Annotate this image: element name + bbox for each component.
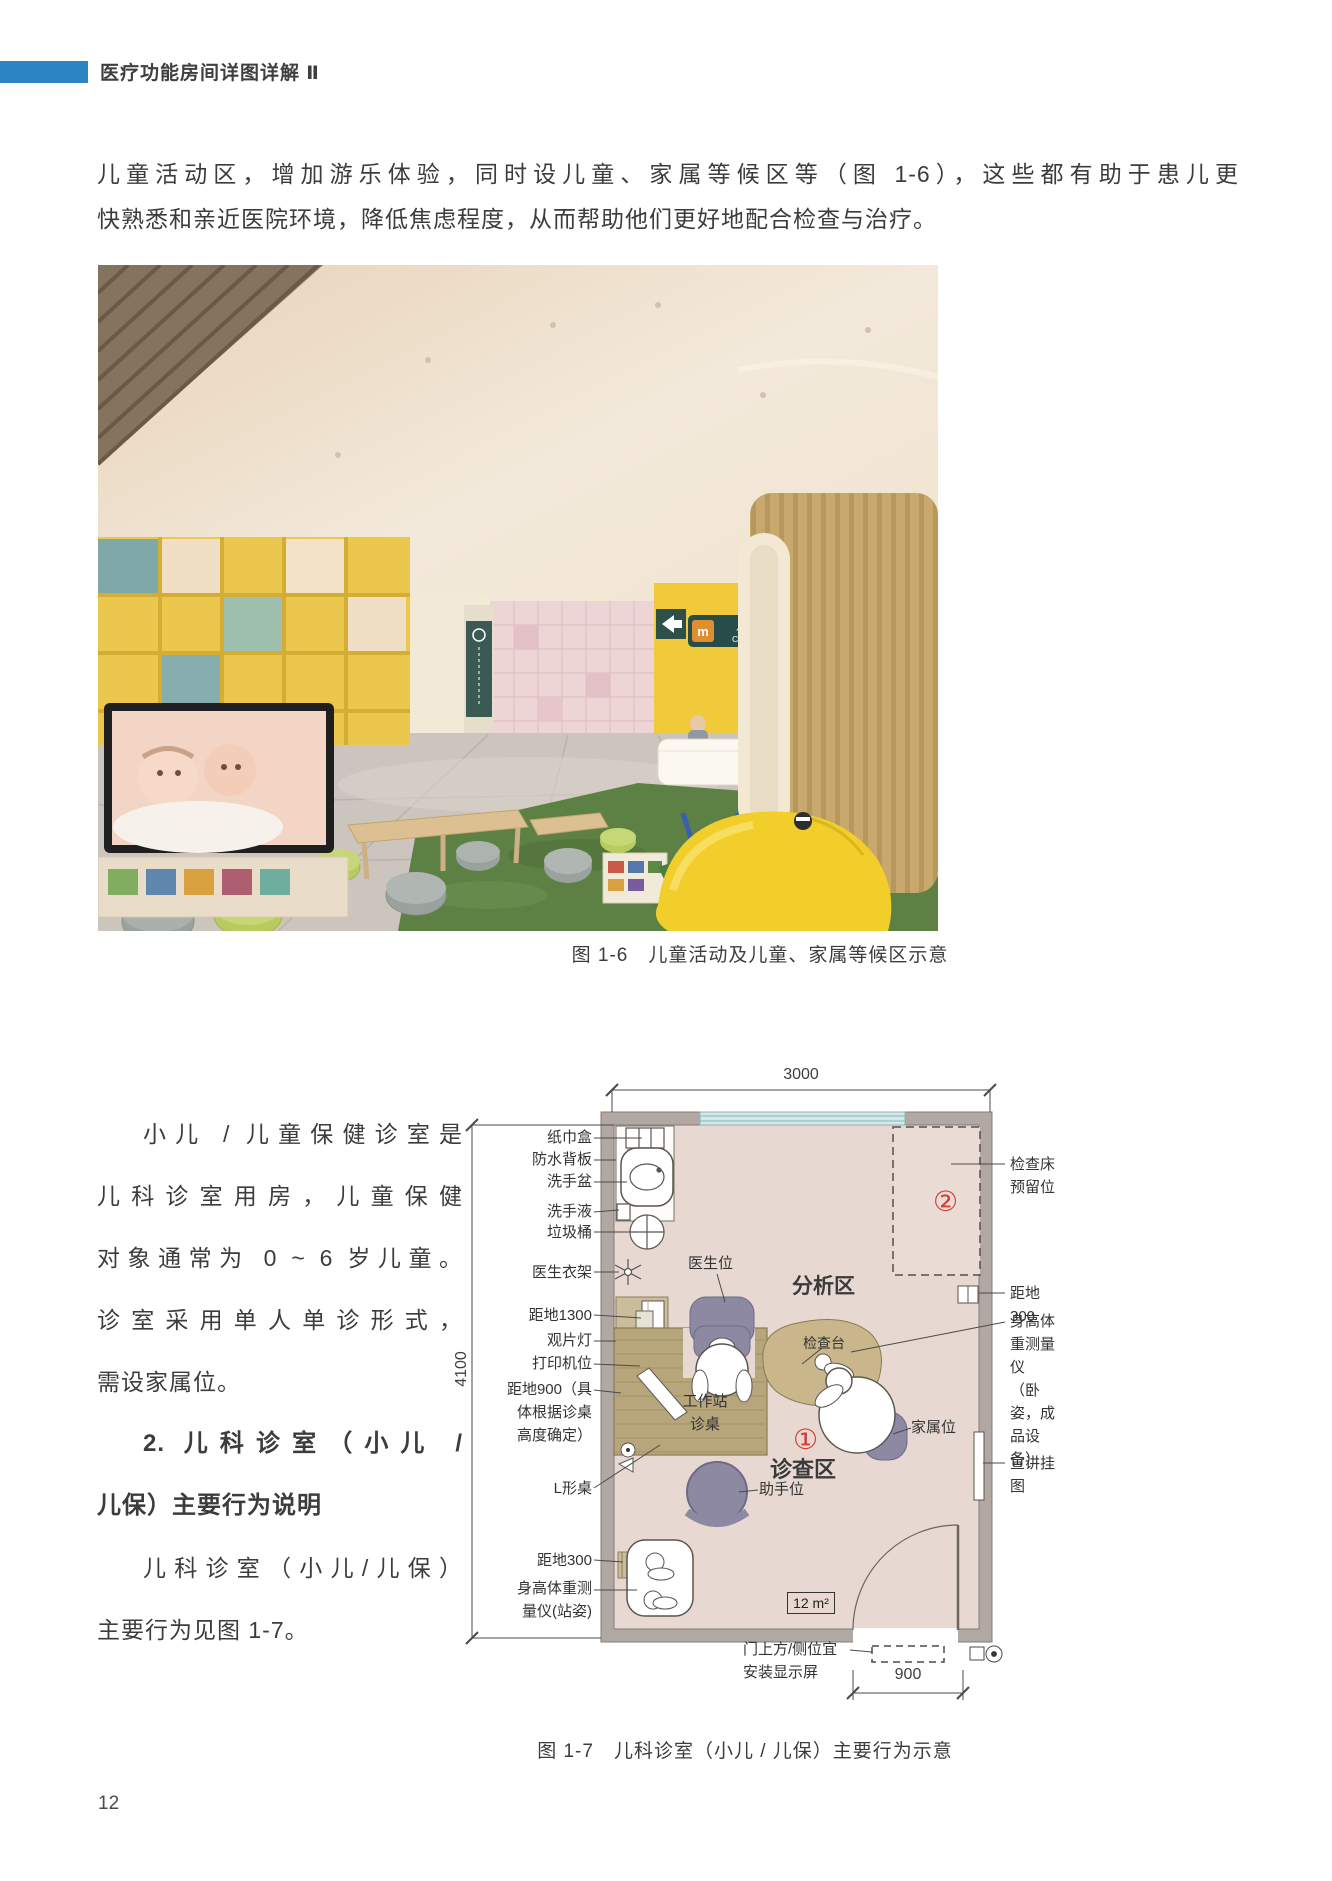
- assistant-seat-label: 助手位: [759, 1478, 804, 1501]
- marker-1: ①: [793, 1426, 818, 1454]
- height-900-note-label: 距地900（具 体根据诊桌 高度确定）: [507, 1378, 592, 1447]
- toy-shelf: [603, 853, 667, 903]
- stature-scale-station: [618, 1540, 693, 1616]
- children-activity-photo: m 儿童保健中心 Child Care Centre: [98, 265, 938, 931]
- sink-unit: [616, 1126, 674, 1221]
- film-viewer-label: 观片灯: [547, 1329, 592, 1352]
- waterproof-panel-label: 防水背板: [532, 1148, 592, 1171]
- exam-table-label: 检查台: [803, 1332, 845, 1355]
- stature-scale-standing-label: 身高体重测 量仪(站姿): [517, 1577, 592, 1623]
- analysis-zone-label: 分析区: [792, 1270, 855, 1300]
- floor-plan: 3000 4100 900 纸巾盒 防水背板 洗手盆 洗手液 垃圾桶 医生衣架 …: [395, 1060, 1055, 1720]
- marker-2: ②: [933, 1188, 958, 1216]
- printer-label: 打印机位: [532, 1352, 592, 1375]
- svg-text:m: m: [697, 624, 709, 639]
- pink-tile-wall: [490, 601, 658, 745]
- wash-basin-label: 洗手盆: [547, 1170, 592, 1193]
- trash-bin-label: 垃圾桶: [547, 1221, 592, 1244]
- photo-illustration: m 儿童保健中心 Child Care Centre: [98, 265, 938, 931]
- doctor-seat: [690, 1297, 754, 1402]
- soap-label: 洗手液: [547, 1200, 592, 1223]
- l-desk-label: L形桌: [554, 1477, 592, 1500]
- intro-line-1: 儿童活动区，增加游乐体验，同时设儿童、家属等候区等（图 1-6），这些都有助于患…: [97, 152, 1239, 197]
- door-opening: [853, 1628, 958, 1643]
- header-accent-bar: [0, 61, 88, 83]
- book-page: 医疗功能房间详图详解 Ⅱ 儿童活动区，增加游乐体验，同时设儿童、家属等候区等（图…: [0, 0, 1332, 1881]
- height-1300-label: 距地1300: [529, 1304, 592, 1327]
- figure-1-6-caption: 图 1-6 儿童活动及儿童、家属等候区示意: [430, 940, 1090, 967]
- toy-cabinet: [98, 857, 348, 917]
- poster-board: [974, 1432, 984, 1500]
- poster-label: 宣讲挂图: [1010, 1452, 1055, 1498]
- tissue-box-label: 纸巾盒: [547, 1126, 592, 1149]
- trash-bin: [630, 1215, 664, 1249]
- camera-symbol: [970, 1646, 1002, 1662]
- door-display-note-label: 门上方/侧位宜 安装显示屏: [743, 1638, 837, 1684]
- display-screen-symbol: [872, 1646, 944, 1662]
- dim-top: 3000: [612, 1066, 990, 1084]
- assistant-stool: [687, 1462, 747, 1523]
- stature-scale-lying-label: 身高体重测量仪 （卧姿，成品设备）: [1010, 1310, 1055, 1471]
- tv-screen: [104, 703, 334, 853]
- room-area-label: 12 m²: [787, 1592, 835, 1614]
- intro-paragraph: 儿童活动区，增加游乐体验，同时设儿童、家属等候区等（图 1-6），这些都有助于患…: [97, 152, 1239, 242]
- height-300-left-label: 距地300: [537, 1549, 592, 1572]
- page-number: 12: [98, 1793, 119, 1815]
- exam-bed-reserve-label: 检查床预留位: [1010, 1153, 1055, 1199]
- dim-door: 900: [853, 1666, 963, 1684]
- doctor-seat-label: 医生位: [688, 1252, 733, 1275]
- window: [700, 1112, 905, 1125]
- workstation-label: 工作站 诊桌: [667, 1390, 743, 1436]
- figure-1-7-caption: 图 1-7 儿科诊室（小儿 / 儿保）主要行为示意: [415, 1736, 1075, 1763]
- coat-rack-label: 医生衣架: [532, 1261, 592, 1284]
- running-head: 医疗功能房间详图详解 Ⅱ: [100, 58, 320, 85]
- family-seat-label: 家属位: [911, 1416, 956, 1439]
- intro-line-2: 快熟悉和亲近医院环境，降低焦虑程度，从而帮助他们更好地配合检查与治疗。: [97, 197, 1239, 242]
- dim-left: 4100: [453, 1334, 471, 1404]
